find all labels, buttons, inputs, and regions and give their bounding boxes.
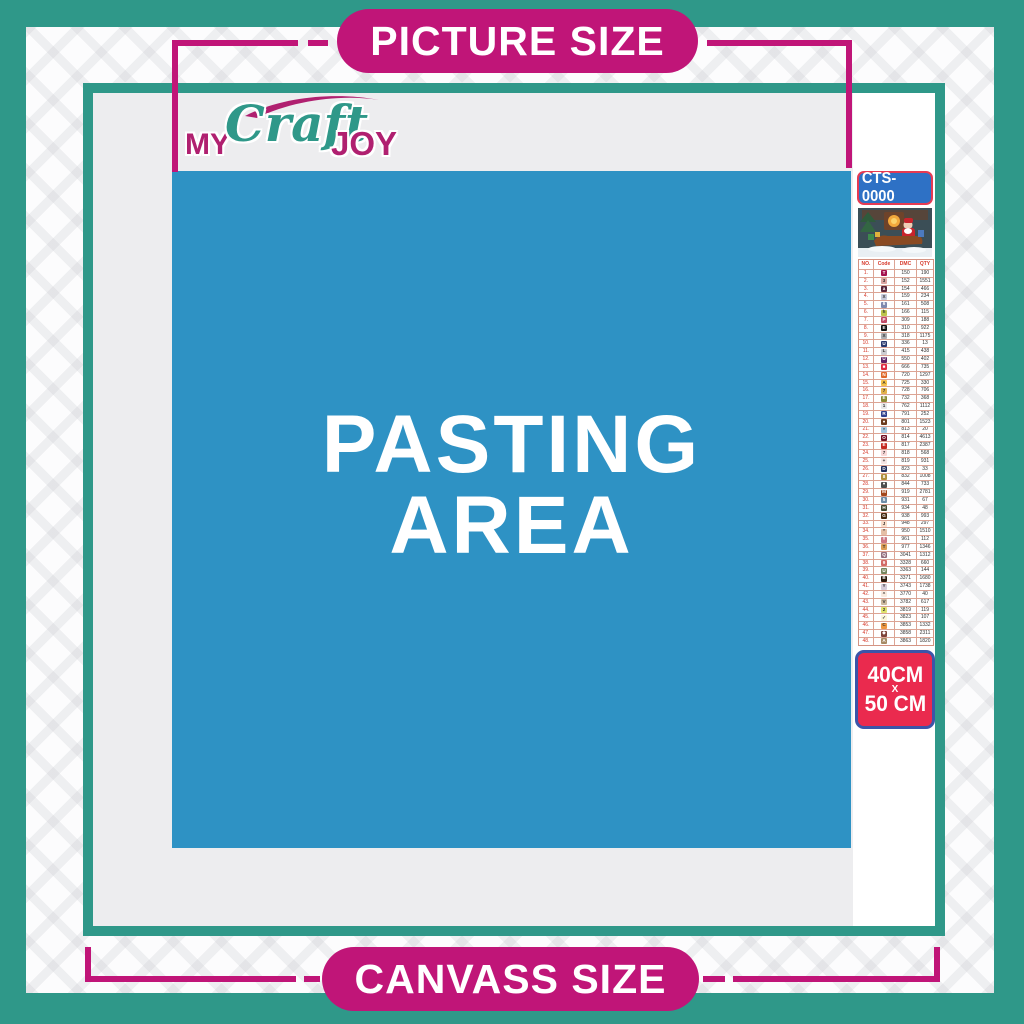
legend-row: 2.31521551 <box>859 277 933 285</box>
legend-row-symbol: 5 <box>874 497 895 504</box>
legend-row-no: 41. <box>859 583 874 590</box>
legend-row: 22.O8144613 <box>859 433 933 441</box>
product-code-badge: CTS-0000 <box>857 171 933 205</box>
legend-row-qty: 1680 <box>917 575 933 582</box>
pasting-area-label: PASTING AREA <box>322 405 701 566</box>
legend-row-qty: 1312 <box>917 552 933 559</box>
legend-row: 30.593167 <box>859 496 933 504</box>
top-bracket-drop-left <box>172 40 178 172</box>
legend-row-qty: 33 <box>917 466 933 473</box>
legend-row-no: 43. <box>859 599 874 606</box>
legend-row-dmc: 154 <box>895 286 917 293</box>
legend-row-no: 6. <box>859 309 874 316</box>
legend-row-qty: 188 <box>917 317 933 324</box>
legend-row-dmc: 3819 <box>895 607 917 614</box>
legend-row-qty: 931 <box>917 458 933 465</box>
legend-row-symbol: 7 <box>874 387 895 394</box>
legend-row-qty: 508 <box>917 301 933 308</box>
legend-row-symbol: X <box>874 293 895 300</box>
legend-row-symbol: ✓ <box>874 614 895 621</box>
legend-row-dmc: 817 <box>895 442 917 449</box>
legend-row-dmc: 159 <box>895 293 917 300</box>
legend-row-symbol: M <box>874 489 895 496</box>
legend-row: 5.6161508 <box>859 300 933 308</box>
legend-row-qty: 922 <box>917 325 933 332</box>
legend-row-symbol: 1 <box>874 403 895 410</box>
legend-row: 48.A38631820 <box>859 637 933 645</box>
legend-row-qty: 48 <box>917 505 933 512</box>
header-qty: QTY <box>917 260 933 269</box>
legend-row-symbol: N <box>874 372 895 379</box>
canvas-size-box: 40CM X 50 CM <box>855 650 935 729</box>
legend-row-qty: 190 <box>917 270 933 277</box>
legend-header-row: NO. Code DMC QTY <box>859 260 933 269</box>
legend-row-dmc: 336 <box>895 340 917 347</box>
brand-logo: MY Craft JOY <box>183 98 393 174</box>
legend-row-dmc: 801 <box>895 419 917 426</box>
logo-text-joy: JOY <box>331 125 397 163</box>
size-width-label: 40CM <box>867 665 923 685</box>
legend-row-no: 11. <box>859 348 874 355</box>
legend-row: 40.B33711680 <box>859 574 933 582</box>
legend-row-symbol: 6 <box>874 301 895 308</box>
picture-size-banner: PICTURE SIZE <box>337 9 698 73</box>
legend-row-symbol: H <box>874 505 895 512</box>
legend-row-no: 10. <box>859 340 874 347</box>
legend-row-qty: 13 <box>917 340 933 347</box>
legend-row-dmc: 3782 <box>895 599 917 606</box>
legend-row-symbol: 9 <box>874 560 895 567</box>
legend-row-qty: 40 <box>917 591 933 598</box>
legend-row-symbol: * <box>874 427 895 434</box>
legend-row-symbol: D <box>874 466 895 473</box>
legend-row-no: 14. <box>859 372 874 379</box>
legend-row-symbol: T <box>874 544 895 551</box>
legend-row-qty: 252 <box>917 411 933 418</box>
legend-rows: 1.T1501902.315215513.a1544664.X1592345.6… <box>859 269 933 645</box>
legend-row-qty: 2781 <box>917 489 933 496</box>
legend-row-no: 9. <box>859 333 874 340</box>
legend-row-qty: 993 <box>917 513 933 520</box>
legend-row-dmc: 3328 <box>895 560 917 567</box>
legend-row-qty: 568 <box>917 450 933 457</box>
legend-row-no: 31. <box>859 505 874 512</box>
legend-row: 13.■666735 <box>859 363 933 371</box>
legend-row-qty: 1820 <box>917 638 933 645</box>
legend-row-symbol: E <box>874 325 895 332</box>
legend-row-symbol: ■ <box>874 364 895 371</box>
legend-row-qty: 1346 <box>917 544 933 551</box>
size-height-label: 50 CM <box>864 694 926 714</box>
top-bracket-line-right <box>707 40 849 46</box>
legend-row-qty: 706 <box>917 387 933 394</box>
legend-row: 14.N7201297 <box>859 371 933 379</box>
legend-row-dmc: 550 <box>895 356 917 363</box>
legend-row-dmc: 3853 <box>895 622 917 629</box>
legend-row-qty: 1112 <box>917 403 933 410</box>
bottom-bracket-rise-left <box>85 947 91 982</box>
legend-row: 23.E8172387 <box>859 441 933 449</box>
legend-row-dmc: 725 <box>895 380 917 387</box>
legend-row: 12.U550402 <box>859 355 933 363</box>
legend-row-dmc: 832 <box>895 474 917 481</box>
legend-row-qty: 107 <box>917 614 933 621</box>
legend-row-no: 16. <box>859 387 874 394</box>
legend-row-dmc: 309 <box>895 317 917 324</box>
legend-row-dmc: 166 <box>895 309 917 316</box>
legend-row-dmc: 666 <box>895 364 917 371</box>
legend-row-dmc: 844 <box>895 481 917 488</box>
legend-row-symbol: 7 <box>874 450 895 457</box>
legend-row: 35.#961112 <box>859 535 933 543</box>
legend-row-dmc: 931 <box>895 497 917 504</box>
legend-row: 43.V3782617 <box>859 598 933 606</box>
legend-row-no: 33. <box>859 521 874 528</box>
legend-row-no: 38. <box>859 560 874 567</box>
legend-row-symbol: a <box>874 286 895 293</box>
legend-row-symbol: h <box>874 309 895 316</box>
bottom-bracket-line-left <box>85 976 296 982</box>
legend-row-dmc: 919 <box>895 489 917 496</box>
legend-row: 45.✓3823107 <box>859 613 933 621</box>
legend-row-qty: 1510 <box>917 528 933 535</box>
bottom-bracket-rise-right <box>934 947 940 982</box>
legend-row-qty: 297 <box>917 521 933 528</box>
legend-row: 39.U3363144 <box>859 566 933 574</box>
legend-row-symbol: V <box>874 599 895 606</box>
top-bracket-line-left <box>175 40 298 46</box>
legend-row-qty: 617 <box>917 599 933 606</box>
legend-row-symbol: 3 <box>874 278 895 285</box>
legend-row-no: 23. <box>859 442 874 449</box>
product-code-label: CTS-0000 <box>862 170 928 206</box>
legend-row: 27.88321008 <box>859 473 933 481</box>
bottom-bracket-dash-right <box>703 976 725 982</box>
legend-row-qty: 20 <box>917 427 933 434</box>
legend-row-dmc: 819 <box>895 458 917 465</box>
legend-row-no: 25. <box>859 458 874 465</box>
legend-row-dmc: 823 <box>895 466 917 473</box>
legend-row-dmc: 762 <box>895 403 917 410</box>
legend-row-symbol: # <box>874 536 895 543</box>
legend-row-symbol: A <box>874 638 895 645</box>
legend-row-symbol: 8 <box>874 474 895 481</box>
legend-row-symbol: A <box>874 380 895 387</box>
legend-row-qty: 438 <box>917 348 933 355</box>
legend-row-no: 42. <box>859 591 874 598</box>
legend-row-no: 7. <box>859 317 874 324</box>
legend-row-symbol: B <box>874 575 895 582</box>
legend-row-symbol: E <box>874 442 895 449</box>
legend-row-qty: 115 <box>917 309 933 316</box>
legend-row-dmc: 415 <box>895 348 917 355</box>
legend-row-qty: 119 <box>917 607 933 614</box>
legend-row-dmc: 3770 <box>895 591 917 598</box>
legend-row-no: 39. <box>859 567 874 574</box>
legend-row-no: 37. <box>859 552 874 559</box>
top-bracket-drop-right <box>846 40 852 168</box>
legend-row-no: 24. <box>859 450 874 457</box>
legend-row: 44.23819119 <box>859 606 933 614</box>
legend-row: 10.U33613 <box>859 339 933 347</box>
legend-row: 38.93328660 <box>859 559 933 567</box>
legend-row-symbol: J <box>874 521 895 528</box>
legend-row: 17.E732368 <box>859 394 933 402</box>
canvass-size-banner: CANVASS SIZE <box>322 947 699 1011</box>
legend-row-symbol: L <box>874 348 895 355</box>
legend-row-no: 20. <box>859 419 874 426</box>
legend-row-no: 44. <box>859 607 874 614</box>
legend-row: 29.M9192781 <box>859 488 933 496</box>
legend-row: 25.+819931 <box>859 457 933 465</box>
legend-row-dmc: 934 <box>895 505 917 512</box>
legend-row-dmc: 948 <box>895 521 917 528</box>
legend-row-no: 4. <box>859 293 874 300</box>
legend-row-dmc: 3371 <box>895 575 917 582</box>
legend-row-dmc: 938 <box>895 513 917 520</box>
legend-row-qty: 402 <box>917 356 933 363</box>
legend-row-no: 28. <box>859 481 874 488</box>
legend-row: 31.H93448 <box>859 504 933 512</box>
legend-row-symbol: 2 <box>874 607 895 614</box>
legend-row: 6.h166115 <box>859 308 933 316</box>
legend-row-no: 1. <box>859 270 874 277</box>
legend-row: 9.X3181175 <box>859 332 933 340</box>
legend-row-no: 13. <box>859 364 874 371</box>
legend-row-no: 18. <box>859 403 874 410</box>
legend-row-qty: 1738 <box>917 583 933 590</box>
legend-row-qty: 660 <box>917 560 933 567</box>
legend-row-symbol: + <box>874 458 895 465</box>
legend-row-dmc: 818 <box>895 450 917 457</box>
legend-row-qty: 733 <box>917 481 933 488</box>
legend-row-qty: 2387 <box>917 442 933 449</box>
legend-row-no: 40. <box>859 575 874 582</box>
legend-row-dmc: 977 <box>895 544 917 551</box>
legend-row-no: 19. <box>859 411 874 418</box>
pasting-line2: AREA <box>322 486 701 566</box>
legend-row-dmc: 150 <box>895 270 917 277</box>
legend-row-qty: 735 <box>917 364 933 371</box>
legend-row-no: 32. <box>859 513 874 520</box>
legend-row-no: 27. <box>859 474 874 481</box>
legend-row-dmc: 728 <box>895 387 917 394</box>
legend-row-no: 47. <box>859 630 874 637</box>
legend-row-symbol: ● <box>874 419 895 426</box>
legend-row-symbol: Q <box>874 552 895 559</box>
legend-row-dmc: 3041 <box>895 552 917 559</box>
legend-row-symbol: X <box>874 333 895 340</box>
legend-row: 26.D82333 <box>859 465 933 473</box>
legend-row-dmc: 720 <box>895 372 917 379</box>
legend-row: 41.Y37431738 <box>859 582 933 590</box>
poster-canvas: PASTING AREA MY Craft JOY PICTURE SIZE C… <box>0 0 1024 1024</box>
legend-row: 28.●844733 <box>859 480 933 488</box>
legend-row-dmc: 950 <box>895 528 917 535</box>
legend-row-dmc: 814 <box>895 434 917 441</box>
bottom-bracket-dash-left <box>304 976 320 982</box>
legend-row-no: 2. <box>859 278 874 285</box>
legend-row-qty: 1008 <box>917 474 933 481</box>
legend-row-symbol: Y <box>874 583 895 590</box>
legend-row-no: 22. <box>859 434 874 441</box>
color-legend-table: NO. Code DMC QTY 1.T1501902.315215513.a1… <box>858 259 934 646</box>
legend-row-qty: 368 <box>917 395 933 402</box>
legend-row-qty: 67 <box>917 497 933 504</box>
legend-row: 8.E310922 <box>859 324 933 332</box>
legend-row-symbol: T <box>874 270 895 277</box>
legend-row-symbol: ^ <box>874 591 895 598</box>
legend-row-dmc: 791 <box>895 411 917 418</box>
header-no: NO. <box>859 260 874 269</box>
legend-row-qty: 1332 <box>917 622 933 629</box>
legend-row-no: 8. <box>859 325 874 332</box>
legend-row-symbol: U <box>874 356 895 363</box>
legend-row-symbol: R <box>874 411 895 418</box>
legend-row-symbol: G <box>874 513 895 520</box>
legend-row-qty: 466 <box>917 286 933 293</box>
legend-row-qty: 1175 <box>917 333 933 340</box>
legend-row: 16.7728706 <box>859 386 933 394</box>
legend-row-no: 26. <box>859 466 874 473</box>
legend-row-dmc: 310 <box>895 325 917 332</box>
legend-row-no: 30. <box>859 497 874 504</box>
logo-text-my: MY <box>185 128 230 162</box>
legend-row-symbol: ◆ <box>874 630 895 637</box>
legend-row-dmc: 732 <box>895 395 917 402</box>
bottom-bracket-line-right <box>733 976 940 982</box>
legend-row: 21.*81320 <box>859 426 933 434</box>
legend-row-no: 45. <box>859 614 874 621</box>
legend-row-dmc: 318 <box>895 333 917 340</box>
legend-row-no: 48. <box>859 638 874 645</box>
legend-row-no: 15. <box>859 380 874 387</box>
legend-row-no: 17. <box>859 395 874 402</box>
legend-row: 3.a154466 <box>859 285 933 293</box>
legend-row: 1.T150190 <box>859 269 933 277</box>
legend-row-symbol: U <box>874 340 895 347</box>
picture-size-label: PICTURE SIZE <box>370 18 664 65</box>
legend-row: 15.A725330 <box>859 379 933 387</box>
legend-row-no: 34. <box>859 528 874 535</box>
legend-row: 34.*9501510 <box>859 527 933 535</box>
legend-row: 37.Q30411312 <box>859 551 933 559</box>
legend-row-qty: 144 <box>917 567 933 574</box>
top-bracket-dash-left <box>308 40 328 46</box>
legend-row: 47.◆38582311 <box>859 629 933 637</box>
legend-row-no: 5. <box>859 301 874 308</box>
legend-row-no: 36. <box>859 544 874 551</box>
legend-row-qty: 1551 <box>917 278 933 285</box>
legend-row-no: 29. <box>859 489 874 496</box>
legend-row: 4.X159234 <box>859 292 933 300</box>
legend-row: 42.^377040 <box>859 590 933 598</box>
legend-row-qty: 2311 <box>917 630 933 637</box>
legend-row-dmc: 3363 <box>895 567 917 574</box>
legend-row: 46.C38531332 <box>859 621 933 629</box>
legend-row: 11.L415438 <box>859 347 933 355</box>
legend-row-qty: 330 <box>917 380 933 387</box>
legend-row-symbol: ● <box>874 481 895 488</box>
legend-row-dmc: 813 <box>895 427 917 434</box>
pasting-line1: PASTING <box>322 405 701 485</box>
header-dmc: DMC <box>895 260 917 269</box>
legend-row: 18.17621112 <box>859 402 933 410</box>
legend-row: 7.P309188 <box>859 316 933 324</box>
legend-row: 20.●8011523 <box>859 418 933 426</box>
legend-row-no: 12. <box>859 356 874 363</box>
legend-row-symbol: O <box>874 434 895 441</box>
design-preview-thumbnail <box>858 208 932 257</box>
legend-row: 32.G938993 <box>859 512 933 520</box>
legend-row-qty: 1297 <box>917 372 933 379</box>
legend-row-dmc: 3823 <box>895 614 917 621</box>
legend-row-qty: 112 <box>917 536 933 543</box>
legend-row-qty: 4613 <box>917 434 933 441</box>
legend-row: 19.R791252 <box>859 410 933 418</box>
legend-row-no: 21. <box>859 427 874 434</box>
legend-row: 36.T9771346 <box>859 543 933 551</box>
legend-row-dmc: 3743 <box>895 583 917 590</box>
legend-row-symbol: * <box>874 528 895 535</box>
legend-row-symbol: C <box>874 622 895 629</box>
legend-row: 33.J948297 <box>859 520 933 528</box>
legend-row-dmc: 152 <box>895 278 917 285</box>
legend-row: 24.7818568 <box>859 449 933 457</box>
legend-row-dmc: 161 <box>895 301 917 308</box>
legend-row-symbol: U <box>874 567 895 574</box>
legend-row-symbol: P <box>874 317 895 324</box>
canvass-size-label: CANVASS SIZE <box>355 956 667 1003</box>
legend-row-qty: 1523 <box>917 419 933 426</box>
header-code: Code <box>874 260 895 269</box>
legend-row-dmc: 3858 <box>895 630 917 637</box>
legend-row-symbol: E <box>874 395 895 402</box>
legend-row-qty: 234 <box>917 293 933 300</box>
legend-row-no: 35. <box>859 536 874 543</box>
legend-row-dmc: 961 <box>895 536 917 543</box>
pasting-area: PASTING AREA <box>172 171 851 848</box>
legend-row-no: 3. <box>859 286 874 293</box>
legend-row-no: 46. <box>859 622 874 629</box>
legend-row-dmc: 3863 <box>895 638 917 645</box>
